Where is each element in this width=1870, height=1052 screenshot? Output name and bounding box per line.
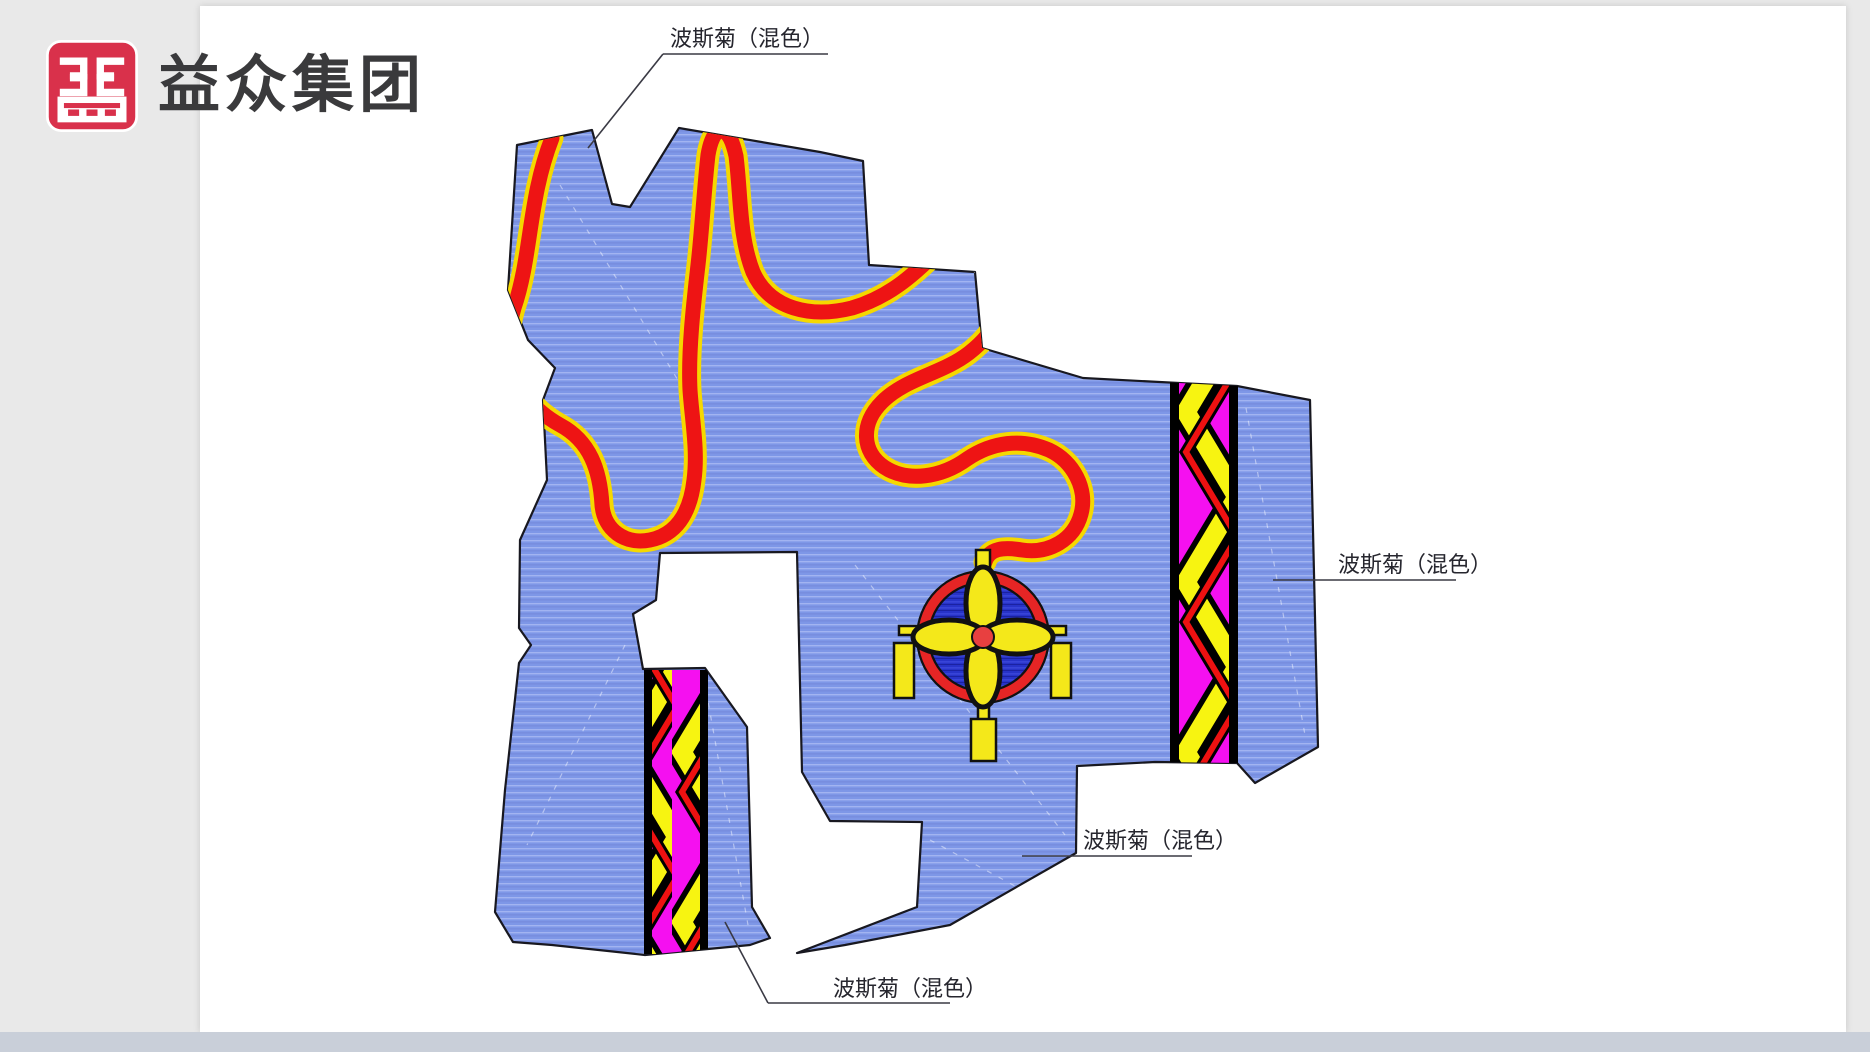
company-logo: 益众集团	[46, 40, 426, 132]
planting-plan-drawing: 波斯菊（混色） 波斯菊（混色） 波斯菊（混色） 波斯菊（混色）	[0, 0, 1870, 1052]
left-flower-band	[644, 670, 708, 954]
label-cosmos-top: 波斯菊（混色）	[670, 26, 824, 51]
label-cosmos-bottom: 波斯菊（混色）	[833, 976, 987, 1001]
logo-seal-icon	[46, 40, 138, 132]
medallion-center	[972, 626, 994, 648]
right-flower-band	[1170, 380, 1238, 764]
label-cosmos-right: 波斯菊（混色）	[1338, 552, 1492, 577]
footer-bar	[0, 1032, 1870, 1052]
page: 波斯菊（混色） 波斯菊（混色） 波斯菊（混色） 波斯菊（混色） 益众集团	[0, 0, 1870, 1052]
label-cosmos-middle: 波斯菊（混色）	[1083, 828, 1237, 853]
leader-line	[588, 54, 663, 148]
pendant-bottom-box	[971, 719, 996, 761]
pendant-right-box	[1051, 643, 1071, 698]
pendant-left-box	[894, 643, 914, 698]
logo-text: 益众集团	[158, 55, 426, 117]
